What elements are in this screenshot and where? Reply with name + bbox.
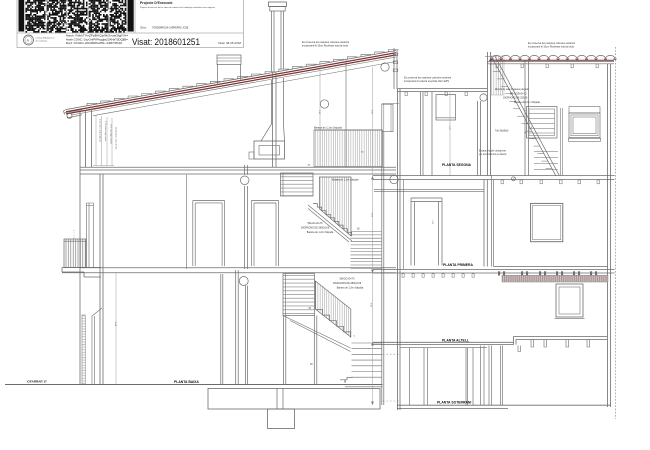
svg-text:Client:: Client:	[140, 27, 147, 30]
svg-text:PLANTA SEGONA: PLANTA SEGONA	[442, 163, 472, 167]
svg-text:Visat: 2018601251: Visat: 2018601251	[132, 37, 200, 48]
svg-text:per acruntament a coberta: per acruntament a coberta	[479, 153, 507, 156]
svg-text:Hash COAC: DxyOnfPtPhygljwZ3XH: Hash COAC: DxyOnfPtPhygljwZ3XHaT3DQjfB=	[66, 38, 129, 41]
svg-text:Barana de 1,0m d'alçada: Barana de 1,0m d'alçada	[337, 287, 364, 290]
svg-text:Tub 50x80x5: Tub 50x80x5	[495, 131, 509, 133]
svg-text:2,70 sostre mig estruct: 2,70 sostre mig estruct	[104, 121, 107, 142]
svg-text:C/FARRAR 17: C/FARRAR 17	[27, 380, 47, 384]
svg-text:5Ø+2C+Ø+70: 5Ø+2C+Ø+70	[308, 222, 324, 225]
svg-text:Hash: FdbkTVnZFpBVQjx9kGvuaOkj: Hash: FdbkTVnZFpBVQjx9kGvuaOkjjIYh=	[66, 36, 129, 38]
svg-text:Escala d'accés únicament: Escala d'accés únicament	[479, 150, 506, 153]
svg-text:Incorporant-hi 10cm Roofmate s: Incorporant-hi 10cm Roofmate sota la teu…	[528, 45, 575, 48]
svg-text:de Catalunya: de Catalunya	[36, 39, 49, 42]
svg-text:2,40 sostre acabat inferior: 2,40 sostre acabat inferior	[98, 119, 101, 142]
svg-text:Visat: 08-05-2018: Visat: 08-05-2018	[218, 42, 242, 45]
svg-text:incorporant-hi coberta inverti: incorporant-hi coberta invertida 10cm EP…	[404, 80, 449, 83]
svg-text:Col·legi d'Arquitectes: Col·legi d'Arquitectes	[36, 37, 55, 40]
svg-text:5Ø+2CØ+Ø+70: 5Ø+2CØ+Ø+70	[510, 93, 527, 95]
svg-text:Barana de 1,1m d'alçada: Barana de 1,1m d'alçada	[332, 179, 359, 182]
svg-text:19GRAONS DE 200/26: 19GRAONS DE 200/26	[503, 97, 528, 100]
svg-text:PLANTA PRIMERA: PLANTA PRIMERA	[443, 263, 473, 267]
svg-text:Barana de 1,2m d'alçada: Barana de 1,2m d'alçada	[307, 231, 334, 234]
svg-text:2,50 sota biga coberta: 2,50 sota biga coberta	[109, 124, 112, 145]
svg-text:Øporta de sala Pegasus plegada: Øporta de sala Pegasus plegada	[495, 88, 530, 91]
svg-text:Barana de 0,9m d'alçada: Barana de 0,9m d'alçada	[514, 101, 541, 104]
svg-text:Barana de 1,1m d'alçada: Barana de 1,1m d'alçada	[314, 126, 342, 129]
svg-text:PLANTA SOTERRANI: PLANTA SOTERRANI	[437, 401, 471, 405]
svg-text:Projecte d'execució de les obr: Projecte d'execució de les obres de refo…	[140, 6, 215, 9]
svg-text:Ref: COAC-2018601251-14873542: Ref: COAC-2018601251-14873542	[66, 42, 123, 45]
svg-text:TORDERROSA GARPERRO JOSE: TORDERROSA GARPERRO JOSE	[152, 27, 189, 30]
svg-text:alçada lliure sota coberta: alçada lliure sota coberta	[114, 127, 117, 150]
svg-text:5Ø+2C+Ø+70: 5Ø+2C+Ø+70	[340, 278, 356, 281]
svg-text:PLANTA BAIXA: PLANTA BAIXA	[174, 380, 199, 384]
svg-text:Projecte D'Execució: Projecte D'Execució	[140, 1, 172, 5]
svg-text:19GRAONS DE 280(16,06: 19GRAONS DE 280(16,06	[301, 227, 330, 230]
svg-text:Incorporant-hi 10cm Roofmate s: Incorporant-hi 10cm Roofmate sota la teu…	[302, 44, 349, 47]
svg-text:19GRAONS DE 280(16,06: 19GRAONS DE 280(16,06	[333, 282, 362, 285]
